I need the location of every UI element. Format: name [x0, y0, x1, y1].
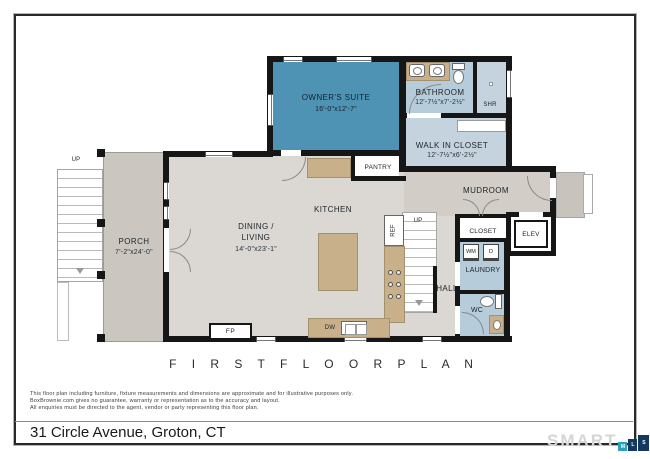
- porch-column: [97, 149, 105, 157]
- stove-burner: [388, 270, 393, 275]
- disclaimer-line: BoxBrownie.com gives no guarantee, warra…: [30, 398, 353, 405]
- shower-drain: [489, 82, 493, 86]
- wall-segment: [399, 166, 556, 172]
- window: [283, 57, 303, 62]
- window: [336, 57, 372, 62]
- stove-burner: [388, 294, 393, 299]
- porch-column: [97, 271, 105, 279]
- stairs-direction-arrow: [76, 268, 84, 274]
- window: [164, 182, 169, 200]
- window: [507, 70, 512, 98]
- bathroom-sink: [409, 64, 425, 77]
- washer-label: WM: [466, 249, 476, 255]
- stove-burner: [396, 282, 401, 287]
- disclaimer-text: This floor plan including furniture, fix…: [30, 391, 353, 412]
- exterior-step: [583, 174, 593, 214]
- kitchen-island: [318, 233, 358, 291]
- room-dining-living-kitchen: [169, 156, 402, 338]
- disclaimer-line: All enquiries must be directed to the ag…: [30, 405, 353, 412]
- bathroom-sink: [429, 64, 445, 77]
- logo-brand-text: SMART: [547, 431, 617, 451]
- label-dining-line2: LIVING: [242, 233, 271, 242]
- wc-vanity: [489, 315, 504, 334]
- label-porch: PORCH: [119, 237, 150, 246]
- dims-walk-in-closet: 12'-7½"x6'-2½": [427, 151, 477, 160]
- label-laundry: LAUNDRY: [466, 266, 501, 275]
- label-pantry: PANTRY: [365, 163, 392, 172]
- dims-bathroom: 12'-7½"x7'-2½": [415, 98, 465, 107]
- sink-basin: [356, 324, 367, 335]
- logo-block-m: M: [618, 442, 627, 451]
- label-mudroom: MUDROOM: [463, 186, 509, 195]
- washing-machine: WM: [463, 244, 479, 259]
- room-porch: [103, 152, 167, 342]
- label-wc: WC: [471, 306, 483, 315]
- label-stairs-up-interior: UP: [414, 217, 423, 226]
- window: [422, 337, 442, 342]
- label-walk-in-closet: WALK IN CLOSET: [416, 141, 488, 150]
- wall-segment: [351, 176, 406, 181]
- stove-burner: [388, 282, 393, 287]
- label-refrigerator: REF: [390, 224, 399, 237]
- dims-porch: 7'-2"x24'-0": [115, 248, 153, 257]
- property-address: 31 Circle Avenue, Groton, CT: [30, 424, 226, 441]
- plan-title: F I R S T F L O O R P L A N: [169, 357, 479, 371]
- stove-burner: [396, 270, 401, 275]
- label-bathroom: BATHROOM: [416, 88, 465, 97]
- floor-plan-page: FP WM D OWNER'S SUITE 16'-0"x12'-7" BATH…: [0, 0, 650, 459]
- label-stairs-up-exterior: UP: [72, 156, 81, 165]
- sink-bowl: [433, 67, 442, 75]
- window: [164, 206, 169, 220]
- label-kitchen: KITCHEN: [314, 205, 352, 214]
- exterior-stoop: [556, 172, 585, 218]
- dims-owners-suite: 16'-0"x12'-7": [315, 105, 357, 114]
- logo-block-s: S: [638, 435, 649, 451]
- door-opening: [281, 150, 301, 156]
- toilet-tank: [452, 63, 465, 70]
- label-elevator: ELEV: [522, 230, 539, 239]
- door-opening: [455, 306, 460, 334]
- window: [268, 94, 273, 126]
- toilet-bowl: [453, 70, 464, 84]
- dryer: D: [483, 244, 499, 259]
- window: [205, 152, 233, 157]
- stove-burner: [396, 294, 401, 299]
- label-shower: SHR: [483, 101, 496, 110]
- wall-segment: [441, 113, 512, 118]
- label-owners-suite: OWNER'S SUITE: [302, 93, 371, 102]
- stairs-direction-arrow: [415, 300, 423, 306]
- label-dining-line1: DINING /: [238, 222, 274, 231]
- washer-door-line: [463, 259, 479, 261]
- door-opening: [164, 228, 169, 272]
- disclaimer-line: This floor plan including furniture, fix…: [30, 391, 353, 398]
- interior-stairs: [402, 212, 437, 313]
- fireplace-label: FP: [226, 328, 235, 335]
- door-opening: [455, 262, 460, 286]
- footer-divider-line: [15, 421, 633, 422]
- porch-column: [97, 334, 105, 342]
- label-dishwasher: DW: [325, 324, 335, 333]
- dryer-door-line: [483, 259, 499, 261]
- fireplace: FP: [209, 323, 252, 340]
- porch-column: [97, 219, 105, 227]
- wall-segment: [455, 334, 460, 342]
- exterior-stairs-rail: [57, 282, 69, 341]
- dims-dining-living: 14'-0"x23'-1": [235, 245, 277, 254]
- label-closet: CLOSET: [469, 227, 496, 236]
- window: [256, 337, 276, 342]
- wall-segment: [473, 62, 477, 113]
- smart-mls-logo: SMART M L S: [547, 431, 649, 451]
- elevator-door-opening: [519, 212, 543, 217]
- wall-segment: [455, 238, 507, 242]
- sink-bowl: [493, 320, 501, 330]
- dryer-label: D: [489, 249, 493, 255]
- logo-block-l: L: [628, 439, 637, 451]
- sink-basin: [345, 324, 356, 335]
- kitchen-counter-top: [307, 158, 351, 178]
- kitchen-sink: [341, 321, 367, 335]
- closet-shelf: [457, 120, 506, 132]
- sink-bowl: [413, 67, 422, 75]
- toilet-tank: [495, 294, 502, 309]
- label-hall: HALL: [436, 284, 458, 293]
